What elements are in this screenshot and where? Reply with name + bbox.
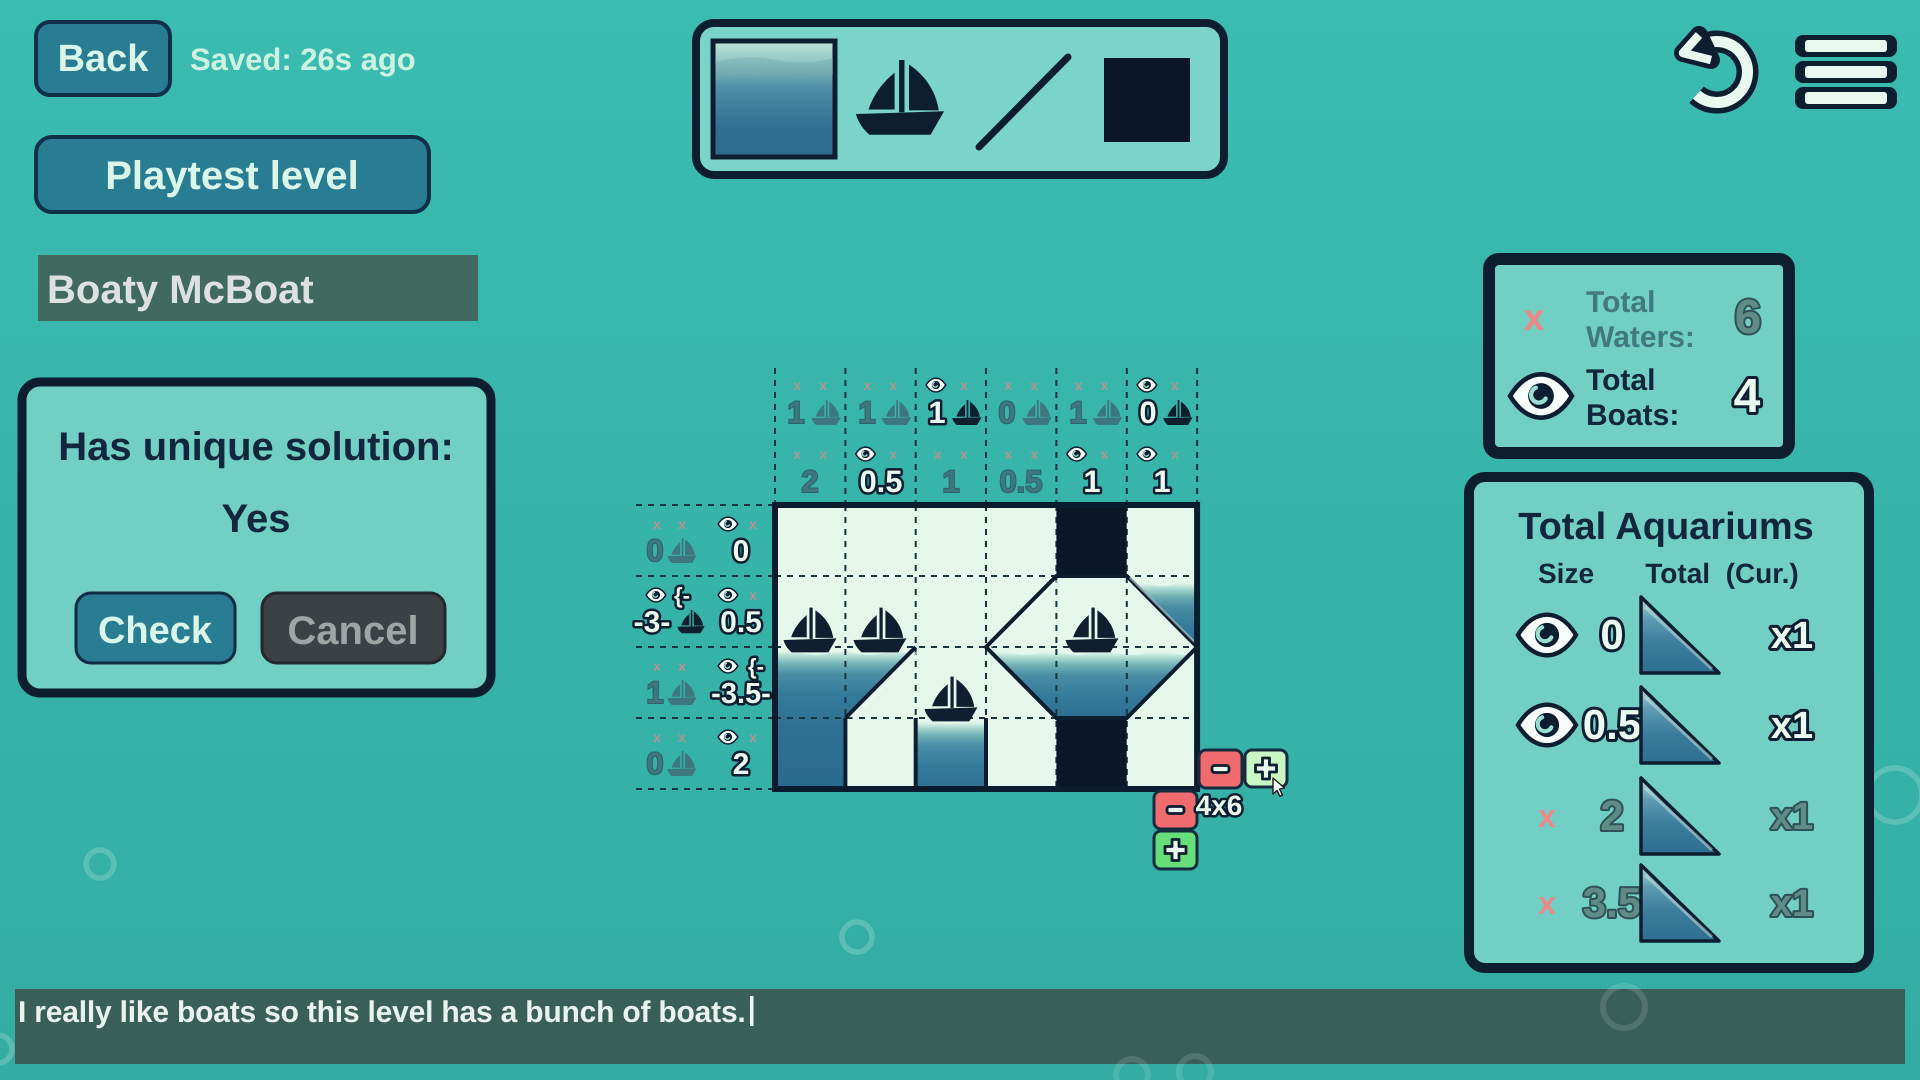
svg-text:I really like boats so this le: I really like boats so this level has a … [18, 996, 746, 1029]
svg-text:2: 2 [733, 748, 750, 781]
svg-text:1: 1 [646, 675, 663, 710]
svg-text:x: x [1075, 377, 1083, 393]
svg-text:x: x [1538, 885, 1556, 921]
svg-text:x: x [653, 516, 661, 532]
svg-text:1: 1 [928, 395, 945, 430]
svg-text:Total: Total [1586, 286, 1655, 319]
svg-text:1: 1 [787, 395, 804, 430]
svg-text:Saved: 26s ago: Saved: 26s ago [190, 42, 416, 77]
svg-text:Has unique solution:: Has unique solution: [58, 425, 454, 469]
svg-text:0.5: 0.5 [859, 464, 902, 499]
svg-text:x1: x1 [1771, 615, 1813, 657]
svg-text:0: 0 [646, 746, 663, 781]
svg-text:x: x [678, 729, 686, 745]
svg-text:x: x [1171, 446, 1179, 462]
svg-text:1: 1 [1069, 395, 1086, 430]
svg-text:x: x [1171, 377, 1179, 393]
svg-text:x: x [890, 446, 898, 462]
svg-text:x: x [749, 729, 757, 745]
svg-text:x: x [1004, 446, 1012, 462]
svg-text:0: 0 [646, 533, 663, 568]
svg-text:x1: x1 [1771, 796, 1813, 838]
svg-text:x: x [1538, 798, 1556, 834]
svg-text:x: x [1524, 297, 1545, 338]
svg-text:x: x [890, 377, 898, 393]
svg-text:Cancel: Cancel [287, 609, 418, 653]
svg-text:0: 0 [998, 395, 1015, 430]
svg-text:Total (Cur.): Total (Cur.) [1645, 558, 1798, 589]
svg-text:1: 1 [1083, 464, 1100, 499]
svg-text:x: x [749, 516, 757, 532]
svg-text:x: x [653, 658, 661, 674]
svg-text:x: x [819, 446, 827, 462]
svg-text:Check: Check [98, 610, 213, 652]
svg-text:3.5: 3.5 [1583, 879, 1641, 926]
svg-text:Yes: Yes [222, 497, 291, 541]
svg-text:{-: {- [674, 583, 690, 608]
svg-text:x: x [934, 446, 942, 462]
svg-text:0: 0 [733, 535, 750, 568]
svg-text:x: x [1004, 377, 1012, 393]
svg-text:x: x [1030, 377, 1038, 393]
svg-text:2: 2 [801, 464, 818, 499]
svg-text:x: x [960, 446, 968, 462]
svg-text:x: x [793, 446, 801, 462]
svg-text:2: 2 [1600, 792, 1623, 839]
svg-text:0.5: 0.5 [1583, 701, 1641, 748]
svg-text:6: 6 [1735, 291, 1762, 344]
svg-text:x1: x1 [1771, 705, 1813, 747]
svg-text:4x6: 4x6 [1196, 790, 1243, 821]
svg-text:x: x [1101, 446, 1109, 462]
svg-text:x: x [864, 377, 872, 393]
svg-text:x1: x1 [1771, 883, 1813, 925]
svg-text:-3-: -3- [634, 606, 671, 639]
svg-text:{-: {- [748, 654, 764, 679]
svg-text:1: 1 [1153, 464, 1170, 499]
svg-text:x: x [749, 587, 757, 603]
svg-text:Total: Total [1586, 364, 1655, 397]
svg-text:x: x [819, 377, 827, 393]
svg-text:x: x [678, 658, 686, 674]
svg-text:4: 4 [1734, 370, 1761, 423]
svg-text:x: x [793, 377, 801, 393]
svg-text:x: x [678, 516, 686, 532]
svg-text:Waters:: Waters: [1586, 321, 1695, 354]
svg-text:1: 1 [942, 464, 959, 499]
svg-text:Boaty McBoat: Boaty McBoat [47, 268, 314, 312]
svg-text:Total Aquariums: Total Aquariums [1518, 506, 1814, 548]
svg-text:0.5: 0.5 [999, 464, 1042, 499]
svg-text:-3.5-: -3.5- [711, 678, 771, 710]
svg-text:x: x [960, 377, 968, 393]
svg-text:x: x [1030, 446, 1038, 462]
svg-text:Size: Size [1538, 558, 1594, 589]
svg-text:0: 0 [1600, 611, 1623, 658]
svg-text:x: x [1101, 377, 1109, 393]
svg-text:0: 0 [1139, 395, 1156, 430]
svg-text:0.5: 0.5 [720, 606, 762, 639]
svg-text:Playtest level: Playtest level [105, 154, 359, 198]
svg-text:x: x [653, 729, 661, 745]
svg-text:Back: Back [58, 38, 150, 80]
svg-text:1: 1 [858, 395, 875, 430]
svg-text:Boats:: Boats: [1586, 399, 1679, 432]
